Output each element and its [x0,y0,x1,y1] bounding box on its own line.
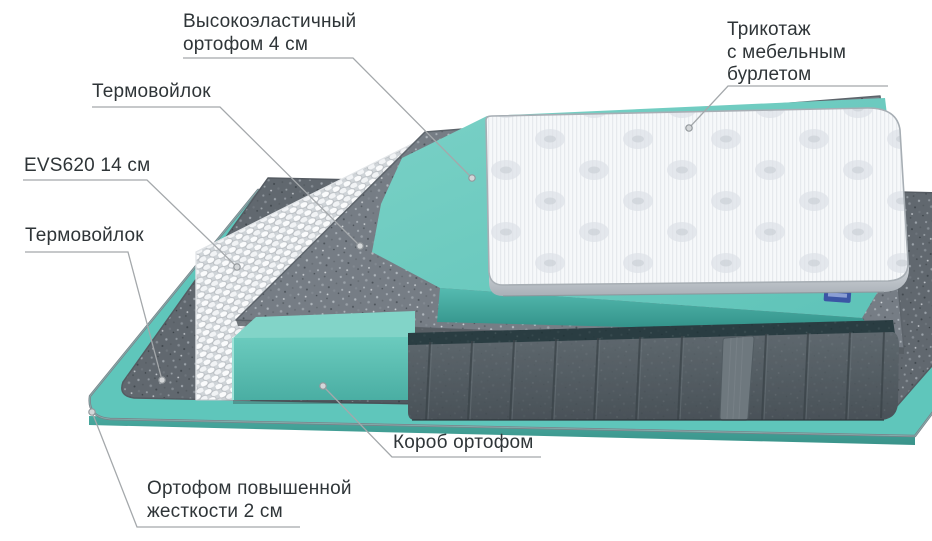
label-thermofelt-top: Термовойлок [92,81,211,104]
dot-rigid-foam [89,409,95,415]
label-thermofelt-bottom: Термовойлок [25,225,144,248]
layer-foam-box [233,311,415,404]
label-rigid-foam: Ортофом повышенной жесткости 2 см [147,478,352,523]
dot-foam-box [320,383,326,389]
mattress-layers-diagram: Высокоэластичный ортофом 4 см Термовойло… [0,0,932,541]
label-elastic-foam: Высокоэластичный ортофом 4 см [183,11,356,56]
dot-thermofelt-top [357,243,363,249]
mattress-base [408,320,899,420]
dot-thermofelt-bottom [159,377,165,383]
dot-elastic-foam [469,175,475,181]
base-handle [720,336,754,420]
layer-knit-cover [486,108,909,296]
label-knit-cover: Трикотаж с мебельным бурлетом [727,19,846,87]
dot-knit-cover [686,125,692,131]
label-foam-box: Короб ортофом [393,432,534,455]
dot-springs [234,264,240,270]
label-springs: EVS620 14 см [24,155,150,178]
